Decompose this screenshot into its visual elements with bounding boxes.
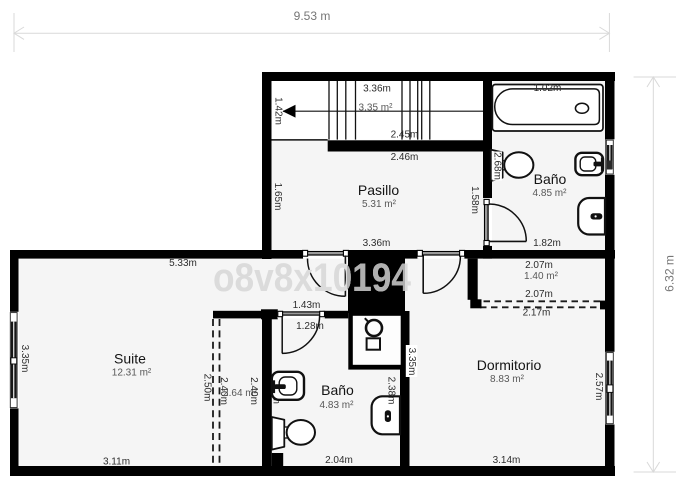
svg-text:1.58m: 1.58m bbox=[469, 186, 480, 214]
svg-text:3.11m: 3.11m bbox=[103, 457, 130, 468]
svg-text:9.53 m: 9.53 m bbox=[294, 9, 331, 23]
svg-text:1.02m: 1.02m bbox=[534, 83, 562, 94]
svg-text:5.31 m²: 5.31 m² bbox=[362, 199, 397, 210]
svg-text:5.33m: 5.33m bbox=[169, 258, 197, 269]
svg-text:1.42m: 1.42m bbox=[273, 97, 284, 125]
svg-text:12.31 m²: 12.31 m² bbox=[112, 368, 152, 379]
svg-text:4.85 m²: 4.85 m² bbox=[533, 188, 568, 199]
svg-text:8.83 m²: 8.83 m² bbox=[490, 374, 525, 385]
svg-text:2.04m: 2.04m bbox=[325, 455, 353, 466]
svg-text:Baño: Baño bbox=[534, 171, 567, 187]
svg-text:1.82m: 1.82m bbox=[533, 238, 561, 249]
svg-text:6.32 m: 6.32 m bbox=[663, 255, 677, 292]
svg-text:2.07m: 2.07m bbox=[525, 289, 553, 300]
svg-text:Dormitorio: Dormitorio bbox=[477, 357, 542, 373]
svg-text:2.46m: 2.46m bbox=[391, 152, 419, 163]
svg-text:2.45m: 2.45m bbox=[391, 130, 419, 141]
svg-text:2.57m: 2.57m bbox=[593, 373, 604, 401]
svg-text:3.35m: 3.35m bbox=[19, 345, 30, 373]
svg-text:3.36m: 3.36m bbox=[363, 84, 391, 95]
svg-text:3.36m: 3.36m bbox=[363, 238, 391, 249]
svg-text:2.40m: 2.40m bbox=[248, 377, 259, 405]
svg-text:3.14m: 3.14m bbox=[493, 455, 521, 466]
svg-text:2.07m: 2.07m bbox=[525, 260, 553, 271]
svg-text:4.83 m²: 4.83 m² bbox=[320, 400, 355, 411]
svg-text:2.38m: 2.38m bbox=[385, 377, 396, 405]
svg-text:3.35m: 3.35m bbox=[406, 348, 417, 376]
svg-text:1.40 m²: 1.40 m² bbox=[524, 271, 559, 282]
svg-text:1.65m: 1.65m bbox=[272, 183, 283, 211]
svg-text:1.28m: 1.28m bbox=[296, 321, 324, 332]
svg-text:1.43m: 1.43m bbox=[293, 300, 321, 311]
svg-text:2.17m: 2.17m bbox=[523, 308, 551, 319]
svg-text:2.50m: 2.50m bbox=[201, 374, 212, 402]
svg-text:3.35 m²: 3.35 m² bbox=[359, 103, 394, 114]
svg-text:2.68m: 2.68m bbox=[492, 152, 503, 180]
svg-text:Pasillo: Pasillo bbox=[358, 182, 399, 198]
svg-text:Suite: Suite bbox=[114, 351, 146, 367]
svg-text:Baño: Baño bbox=[321, 382, 354, 398]
